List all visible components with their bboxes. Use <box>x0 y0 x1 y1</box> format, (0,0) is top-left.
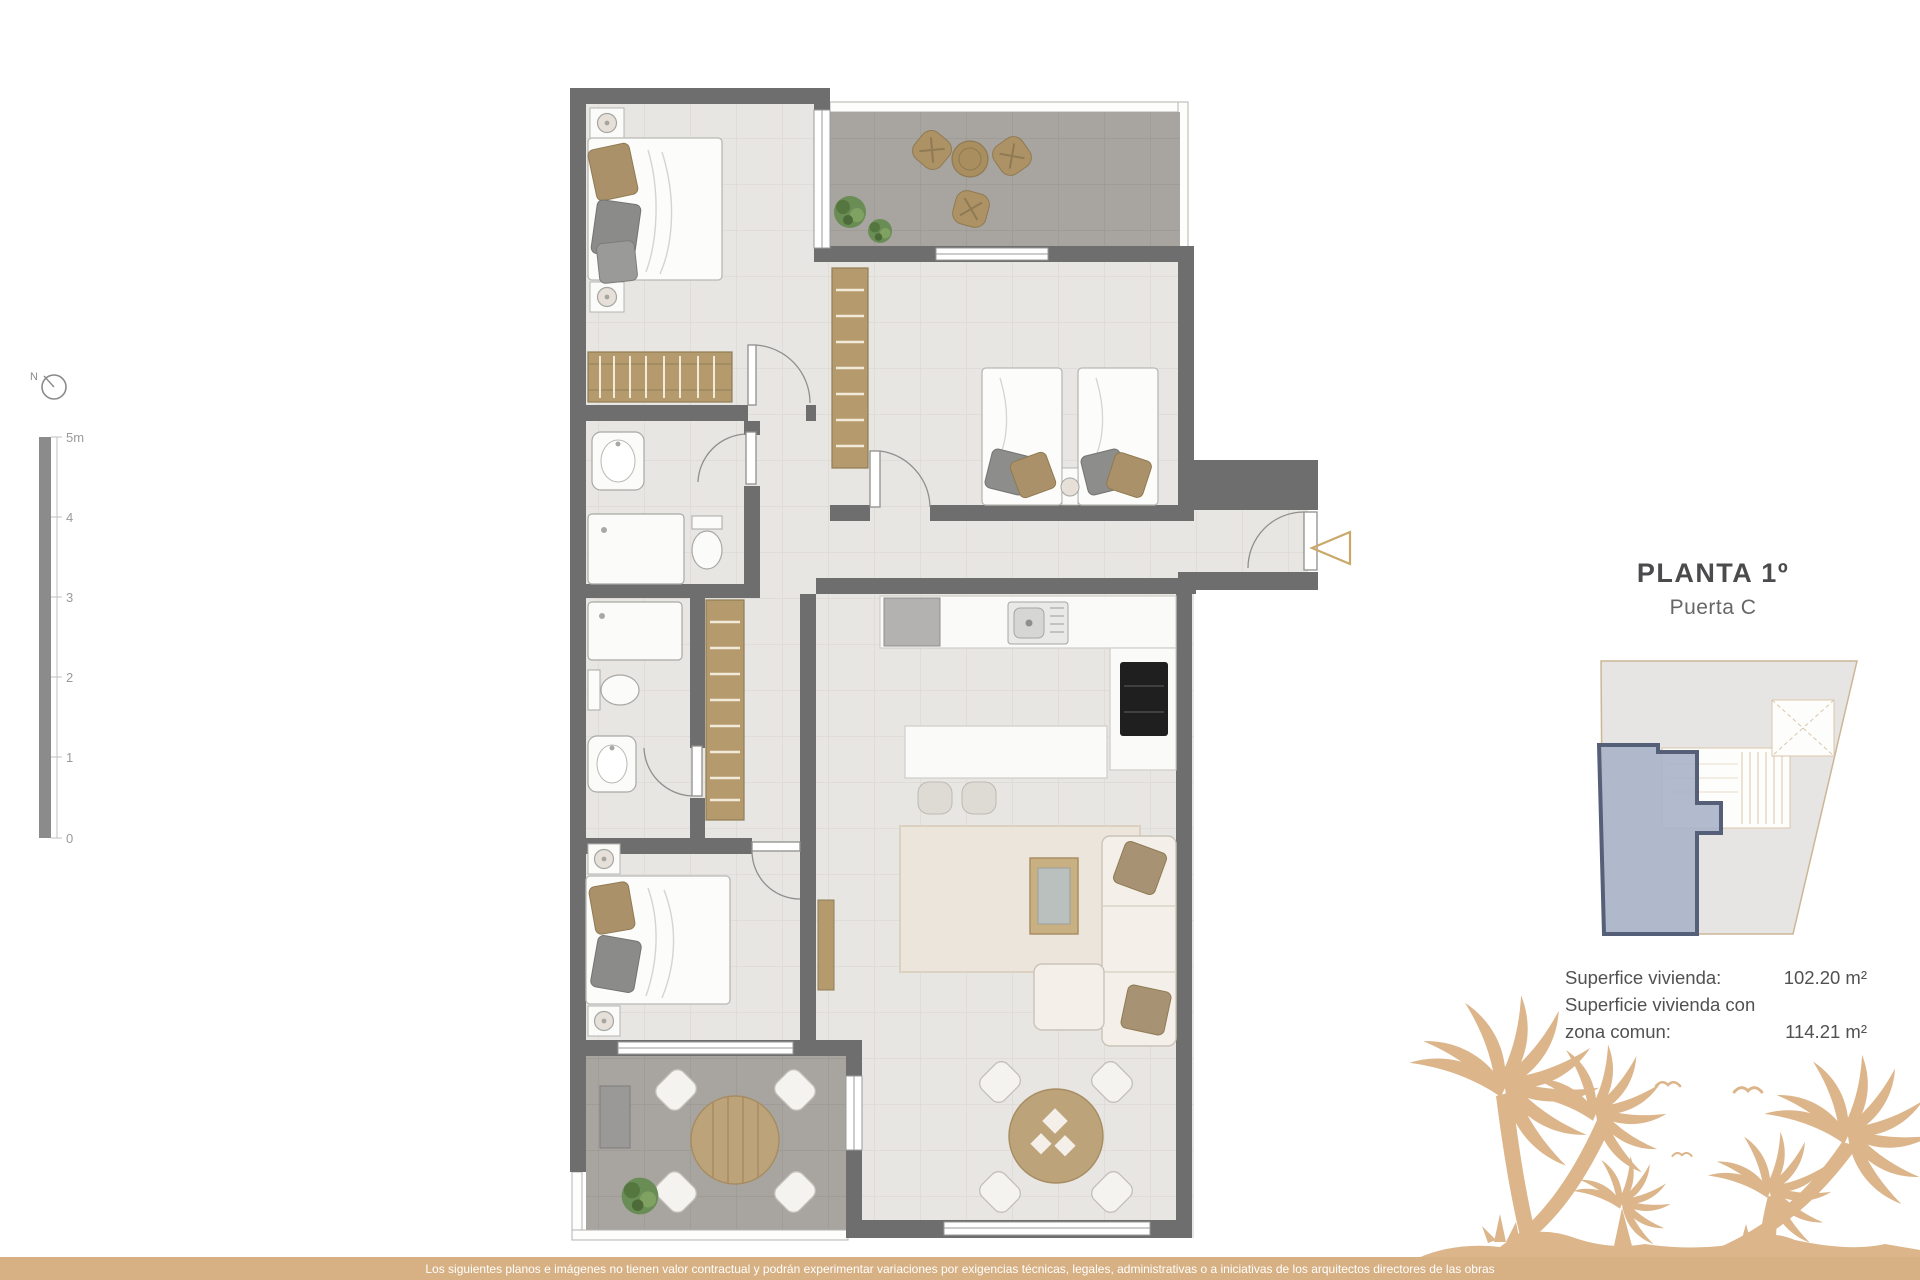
dining-table <box>1009 1089 1103 1183</box>
area-label: Superfice vivienda: <box>1565 964 1721 991</box>
shower-tray <box>588 602 682 660</box>
bar-stool <box>918 782 952 814</box>
floorplan-page: 5m 4 3 2 1 0 N <box>0 0 1920 1280</box>
bird-icon <box>1656 1082 1680 1086</box>
toilet <box>692 516 722 529</box>
plant-icon <box>868 219 892 243</box>
coffee-table-glass <box>1038 868 1070 924</box>
north-compass-icon: N <box>30 371 66 399</box>
plan-subtitle: Puerta C <box>1548 596 1878 620</box>
pillow <box>596 240 638 284</box>
terrace-top <box>830 102 1188 254</box>
terrace-bottom <box>572 1056 848 1240</box>
apartment-plan <box>570 88 1350 1240</box>
shower-tray <box>588 514 684 584</box>
wardrobe <box>706 600 744 820</box>
plant-icon <box>622 1178 659 1215</box>
entrance-arrow-icon <box>1312 532 1350 564</box>
kitchen-island <box>905 726 1107 778</box>
pillow <box>1120 984 1172 1036</box>
scale-label: 0 <box>66 831 73 846</box>
scale-label: 2 <box>66 670 73 685</box>
bird-icon <box>1672 1153 1691 1156</box>
floorplan-canvas: 5m 4 3 2 1 0 N <box>0 0 1920 1280</box>
toilet <box>588 670 600 710</box>
pillow <box>588 881 636 935</box>
bird-icon <box>1734 1088 1762 1092</box>
surface-areas: Superfice vivienda: 102.20 m² Superficie… <box>1565 964 1867 1045</box>
cooktop <box>1120 662 1168 736</box>
scale-label: 5m <box>66 430 84 445</box>
room-master-bedroom <box>587 108 732 402</box>
scale-label: 3 <box>66 590 73 605</box>
fridge <box>884 598 940 646</box>
plan-title: PLANTA 1º <box>1548 558 1878 589</box>
hallway <box>706 600 744 820</box>
location-minimap <box>1599 661 1857 934</box>
scale-bar: 5m 4 3 2 1 0 <box>39 430 84 846</box>
palm-tree-icon <box>1718 1055 1920 1256</box>
terrace-storage-unit <box>600 1086 630 1148</box>
pillow <box>590 935 642 994</box>
plant-icon <box>834 196 866 228</box>
scale-label: 4 <box>66 510 73 525</box>
area-value: 114.21 m² <box>1785 1018 1867 1045</box>
footer-disclaimer: Los siguientes planos e imágenes no tien… <box>0 1257 1920 1280</box>
terrace-table <box>952 141 988 177</box>
plan-title-block: PLANTA 1º Puerta C <box>1548 558 1878 620</box>
bar-stool <box>962 782 996 814</box>
scale-label: 1 <box>66 750 73 765</box>
area-value: 102.20 m² <box>1784 964 1867 991</box>
area-label: zona comun: <box>1565 1018 1671 1045</box>
wardrobe <box>588 352 732 402</box>
terrace-dining-table <box>691 1096 779 1184</box>
compass-label: N <box>30 371 38 383</box>
area-label: Superficie vivienda con <box>1565 991 1755 1018</box>
sofa-chaise <box>1034 964 1104 1030</box>
tv-cabinet <box>818 900 834 990</box>
